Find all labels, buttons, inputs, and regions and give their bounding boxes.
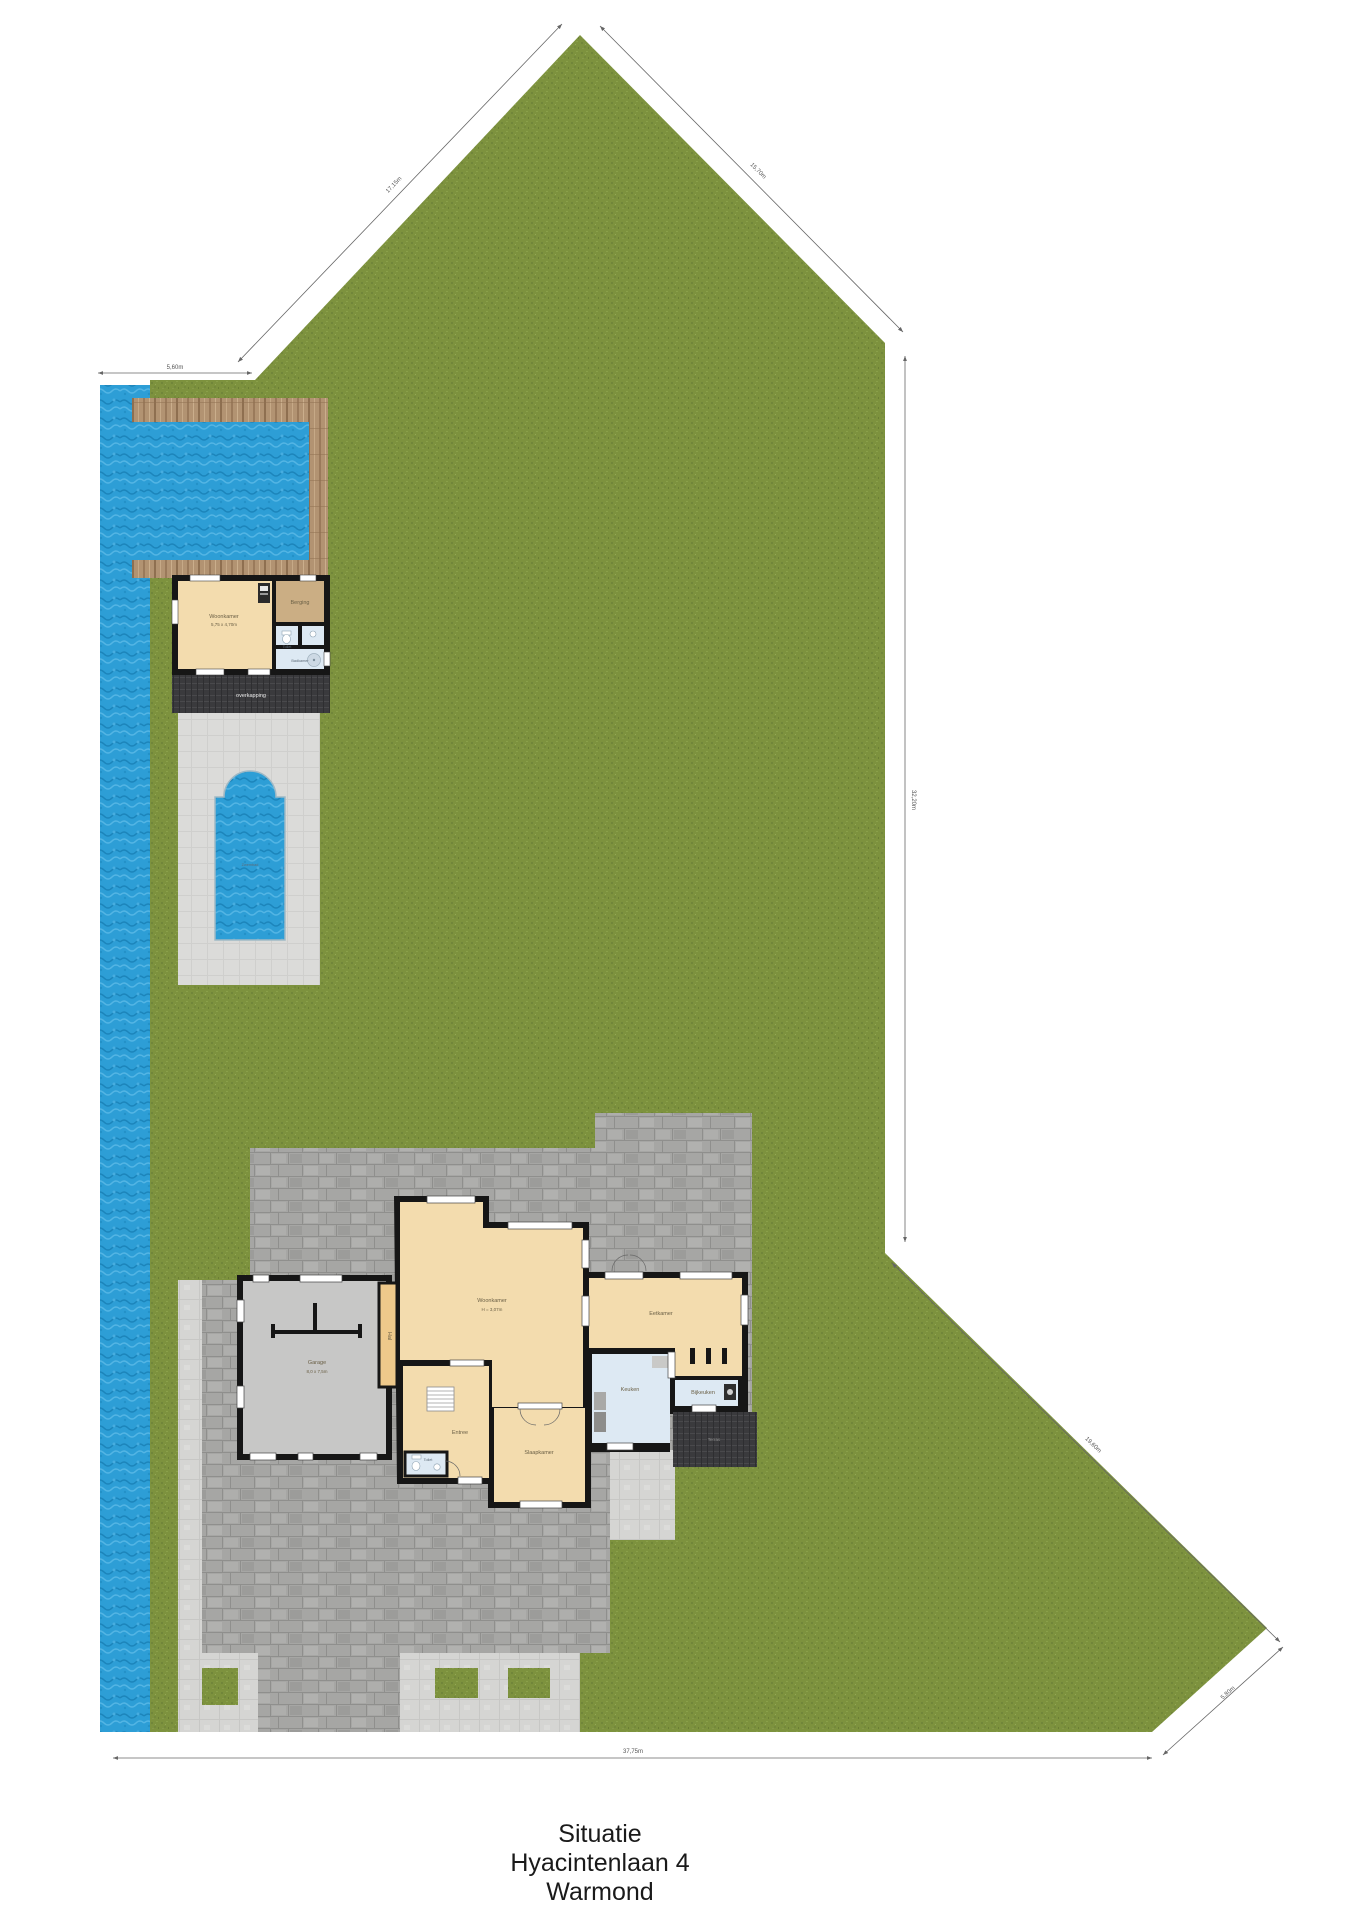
garage-label: Garage [308,1360,326,1366]
water-inlet [100,400,311,560]
sink-icon [310,631,316,637]
poolhouse-storage-label: Berging [291,600,310,606]
dim-right-side: 32,20m [910,790,916,810]
canopy-label: overkapping [236,693,266,699]
pool-label: Zwembad [242,863,259,867]
entry-label: Entree [452,1430,468,1436]
dim-top-left: 5,60m [167,365,184,371]
poolhouse-livingroom-sub: 5,75 x 4,70m [211,622,237,627]
garage-sub: 8,0 x 7,5m [306,1369,327,1374]
address-title: Hyacintenlaan 4 [510,1849,689,1877]
dim-bottom-right-lower: 5,80m [1220,1685,1236,1701]
poolhouse-toilet-label: Toilet [283,645,293,649]
title-block: Situatie Hyacintenlaan 4 Warmond [510,1820,689,1906]
poolhouse: Woonkamer 5,75 x 4,70m Berging Toilet Ba… [172,575,330,713]
city-title: Warmond [546,1878,653,1906]
pool-area: Zwembad [178,712,320,985]
kitchen-path [610,1450,675,1540]
poolhouse-bathroom-label: Badkamer [291,659,309,663]
waterway-left [100,385,150,1732]
house-toilet-label: Toilet [424,1458,434,1462]
site-plan-drawing: Zwembad Woonkamer 5,75 x 4,70m [0,0,1358,1920]
bedroom-label: Slaapkamer [524,1450,554,1456]
diningroom-label: Eetkamer [649,1311,673,1317]
house-deck-label: Terras [708,1437,721,1442]
kitchen-label: Keuken [621,1387,640,1393]
stairs [427,1387,454,1411]
poolhouse-livingroom-label: Woonkamer [209,614,239,620]
plan-type-title: Situatie [558,1820,641,1848]
hallway-label: Hal [386,1332,392,1340]
utility-label: Bijkeuken [691,1390,715,1396]
livingroom-sub: H = 3,07m [482,1307,503,1312]
livingroom-label: Woonkamer [477,1298,507,1304]
house-toilet-floor [405,1452,447,1476]
dim-right-diagonal: 15,70m [749,162,767,180]
site-plan-page: Zwembad Woonkamer 5,75 x 4,70m [0,0,1358,1920]
toilet-icon [282,631,291,644]
washer-icon [724,1384,736,1400]
swimming-pool [215,771,285,940]
dim-bottom: 37,75m [623,1749,643,1755]
